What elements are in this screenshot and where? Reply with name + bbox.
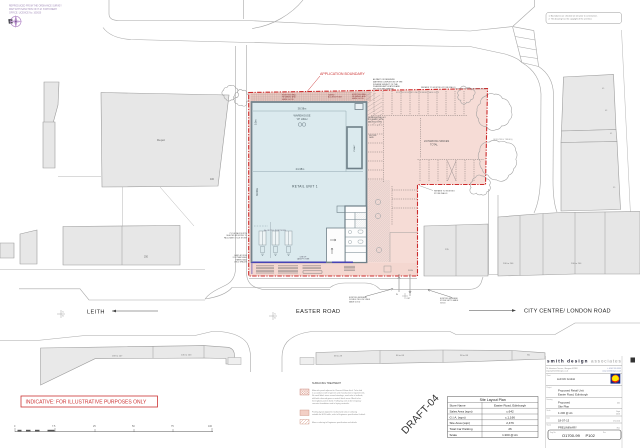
svg-text:Site Plan: Site Plan [558,405,570,409]
svg-text:P102: P102 [586,433,596,438]
svg-text:5.5m: 5.5m [255,120,258,125]
svg-text:Sept: Sept [616,410,620,413]
svg-text:Easter Road, Edinburgh: Easter Road, Edinburgh [494,404,526,408]
svg-text:145 to 103: 145 to 103 [181,354,192,357]
svg-text:206 to 204: 206 to 204 [571,262,582,265]
svg-text:www.smithdesign.co.uk: www.smithdesign.co.uk [602,370,621,373]
svg-text:GATE: GATE [369,136,375,139]
svg-text:SIGN: SIGN [408,270,413,272]
svg-text:1. Boundaries are checked on s: 1. Boundaries are checked on site prior … [549,15,598,18]
svg-text:2,476: 2,476 [506,421,514,425]
svg-text:74 Johnstone Terrace, Glasgow: 74 Johnstone Terrace, Glasgow G12BX [546,367,578,370]
svg-text:No small block sizes around st: No small block sizes around standage; ro… [312,394,363,397]
svg-text:6: 6 [275,318,276,320]
svg-text:100: 100 [208,425,213,428]
svg-text:401: 401 [617,403,620,405]
svg-text:CHILD SPACES: CHILD SPACES [234,261,248,264]
svg-text:1:200 @ A1: 1:200 @ A1 [502,433,518,437]
svg-text:Dwg No: Dwg No [550,432,556,434]
svg-text:26: 26 [508,427,512,431]
svg-text:No OF TILL POSITIONS: No OF TILL POSITIONS [264,230,286,232]
svg-text:smith design: smith design [547,359,589,364]
svg-text:RETAIL UNIT 1: RETAIL UNIT 1 [292,184,318,188]
svg-text:Rev: Rev [617,427,620,429]
svg-text:Lidl UK GmbH: Lidl UK GmbH [557,377,575,381]
svg-text:concrete foundations and in la: concrete foundations and in laying mater… [312,402,350,405]
svg-text:2. This drawing has the copyri: 2. This drawing has the copyright of the… [549,18,593,21]
svg-text:250: 250 [144,256,149,259]
svg-text:PLANT: PLANT [353,144,356,152]
svg-text:Site Layout Plan: Site Layout Plan [480,398,506,402]
svg-text:400: 400 [210,178,215,181]
svg-text:EASTER ROAD: EASTER ROAD [296,309,341,315]
svg-text:G.I.A. (sqm): G.I.A. (sqm) [450,415,466,419]
svg-text:INDICATIVE: FOR ILLUSTRATIVE P: INDICATIVE: FOR ILLUSTRATIVE PURPOSES ON… [26,400,148,406]
svg-text:REPAIRS TO EXISTING STONE WALL: REPAIRS TO EXISTING STONE WALLS [421,86,456,89]
svg-text:TOTAL: TOTAL [430,144,438,147]
svg-text:herringbone pattern bond. Trol: herringbone pattern bond. Trolley bay se… [312,399,361,402]
svg-text:Checked: Checked [613,420,620,422]
svg-text:Rev: Rev [603,432,606,434]
svg-text:infill with coloured grano or: infill with coloured grano or match bloc… [312,397,361,400]
svg-text:86 to 68: 86 to 68 [396,354,405,357]
svg-text:Easter Road, Edinburgh: Easter Road, Edinburgh [558,393,588,397]
svg-text:'W' HIGH: 'W' HIGH [297,117,308,121]
svg-text:MADE GOOD: MADE GOOD [282,98,294,101]
svg-text:t: 0141 555 5555: t: 0141 555 5555 [608,367,622,370]
svg-text:RAILINGS OVER: RAILINGS OVER [368,120,383,123]
svg-text:5: 5 [63,312,64,314]
svg-text:MAP WITH SANCTION OF H.M. STAT: MAP WITH SANCTION OF H.M. STATIONERY [9,8,58,11]
svg-text:CANOPY OVER: CANOPY OVER [297,258,310,261]
svg-text:PRELIMINARY: PRELIMINARY [558,425,577,429]
svg-text:in accordance with engineers a: in accordance with engineers and manufac… [312,392,365,395]
svg-text:LEITH: LEITH [87,310,105,316]
svg-text:Depot: Depot [157,138,165,142]
svg-text:O1700-99: O1700-99 [562,433,581,438]
svg-text:Total Car Parking: Total Car Parking [450,427,473,431]
svg-text:6: 6 [63,316,64,318]
svg-text:Mono surfacing to Engineers sp: Mono surfacing to Engineers specificatio… [312,421,358,424]
svg-text:Parking layout aligned to mark: Parking layout aligned to marked and col… [312,411,357,414]
svg-text:EXISTING BOUNDARY WALL RETAINE: EXISTING BOUNDARY WALL RETAINED, MADE GO… [396,91,440,94]
svg-text:WAREHOUSE: WAREHOUSE [294,114,311,118]
svg-text:Sales Area (sqm): Sales Area (sqm) [450,410,473,414]
svg-text:98 to 88: 98 to 88 [460,354,469,357]
svg-text:c.642: c.642 [506,410,514,414]
svg-text:Scale: Scale [450,433,458,437]
svg-text:STONE WALLS: STONE WALLS [434,192,448,195]
svg-text:CITY CENTRE/ LONDON ROAD: CITY CENTRE/ LONDON ROAD [524,309,611,315]
svg-text:MADE GOOD: MADE GOOD [352,97,364,100]
svg-text:Site Area (sqm): Site Area (sqm) [450,421,471,425]
svg-text:Scale: Scale [547,410,551,412]
svg-text:(EXISTING TREES): (EXISTING TREES) [493,139,513,141]
svg-text:38.38m: 38.38m [298,107,307,111]
svg-text:SURFACING TREATMENT: SURFACING TREATMENT [312,382,342,385]
svg-text:enquiry@smithdesign.co.uk: enquiry@smithdesign.co.uk [546,370,568,373]
svg-text:18-07-13: 18-07-13 [558,418,570,422]
svg-text:suitable for HGV traffic; refe: suitable for HGV traffic; refer to Engin… [312,413,366,416]
svg-text:SECTION MECHANISM: SECTION MECHANISM [373,88,394,91]
svg-text:OFFICE. LICENCE No. 100020: OFFICE. LICENCE No. 100020 [9,13,42,15]
svg-text:REPRODUCED FROM THE ORDNANCE S: REPRODUCED FROM THE ORDNANCE SURVEY [9,5,62,8]
svg-text:208 to 206: 208 to 206 [503,262,514,265]
svg-text:ACCESS POINT: ACCESS POINT [328,95,343,98]
svg-text:associates: associates [591,359,622,364]
svg-text:MADE GOOD: MADE GOOD [349,300,361,303]
svg-text:169 to 147: 169 to 147 [112,355,123,358]
svg-text:GOOD: GOOD [440,302,446,304]
svg-text:24.38m: 24.38m [296,167,305,171]
svg-text:SU: SU [527,355,530,357]
svg-text:Drawing: Drawing [547,399,553,401]
svg-text:38.98m: 38.98m [256,188,259,196]
svg-text:Materials panel adjacent to Ch: Materials panel adjacent to Charcoal 60m… [312,389,362,392]
svg-text:5: 5 [275,314,276,316]
svg-text:2013: 2013 [616,414,620,416]
svg-text:1:200 @ A1: 1:200 @ A1 [558,411,573,415]
svg-text:c.1,166: c.1,166 [505,415,515,419]
svg-text:APPLICATION BOUNDARY: APPLICATION BOUNDARY [320,72,365,76]
svg-text:68 to 28: 68 to 28 [334,355,343,358]
svg-text:FACILITATE CYCLE STORE: FACILITATE CYCLE STORE [224,236,248,239]
svg-text:Store Name: Store Name [450,404,466,408]
